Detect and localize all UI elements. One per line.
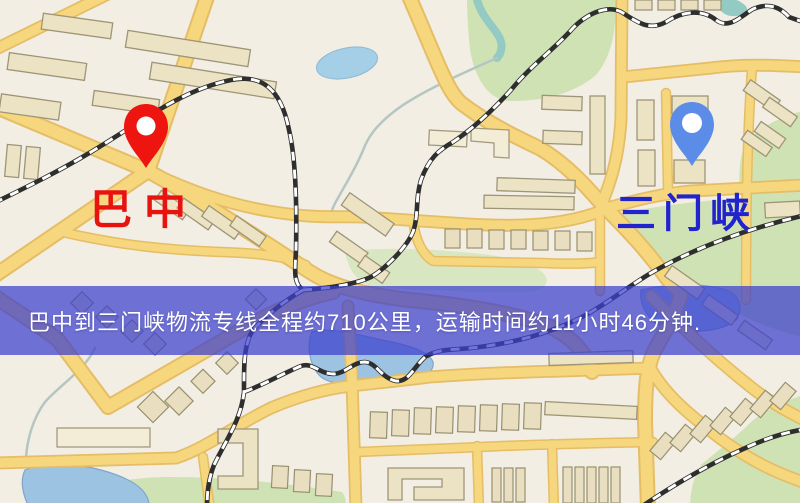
origin-label: 巴中 [90,176,198,237]
destination-pin-icon[interactable] [668,99,716,169]
destination-label: 三门峡 [616,181,757,239]
origin-pin-icon[interactable] [122,102,170,170]
route-banner: 巴中到三门峡物流专线全程约710公里，运输时间约11小时46分钟. [0,286,800,355]
map-screenshot: 巴中 三门峡 巴中到三门峡物流专线全程约710公里，运输时间约11小时46分钟. [0,0,800,503]
route-banner-text: 巴中到三门峡物流专线全程约710公里，运输时间约11小时46分钟. [0,305,701,337]
map-canvas[interactable] [0,0,800,503]
origin-pin-shape [124,104,168,168]
destination-pin-shape [670,102,714,166]
